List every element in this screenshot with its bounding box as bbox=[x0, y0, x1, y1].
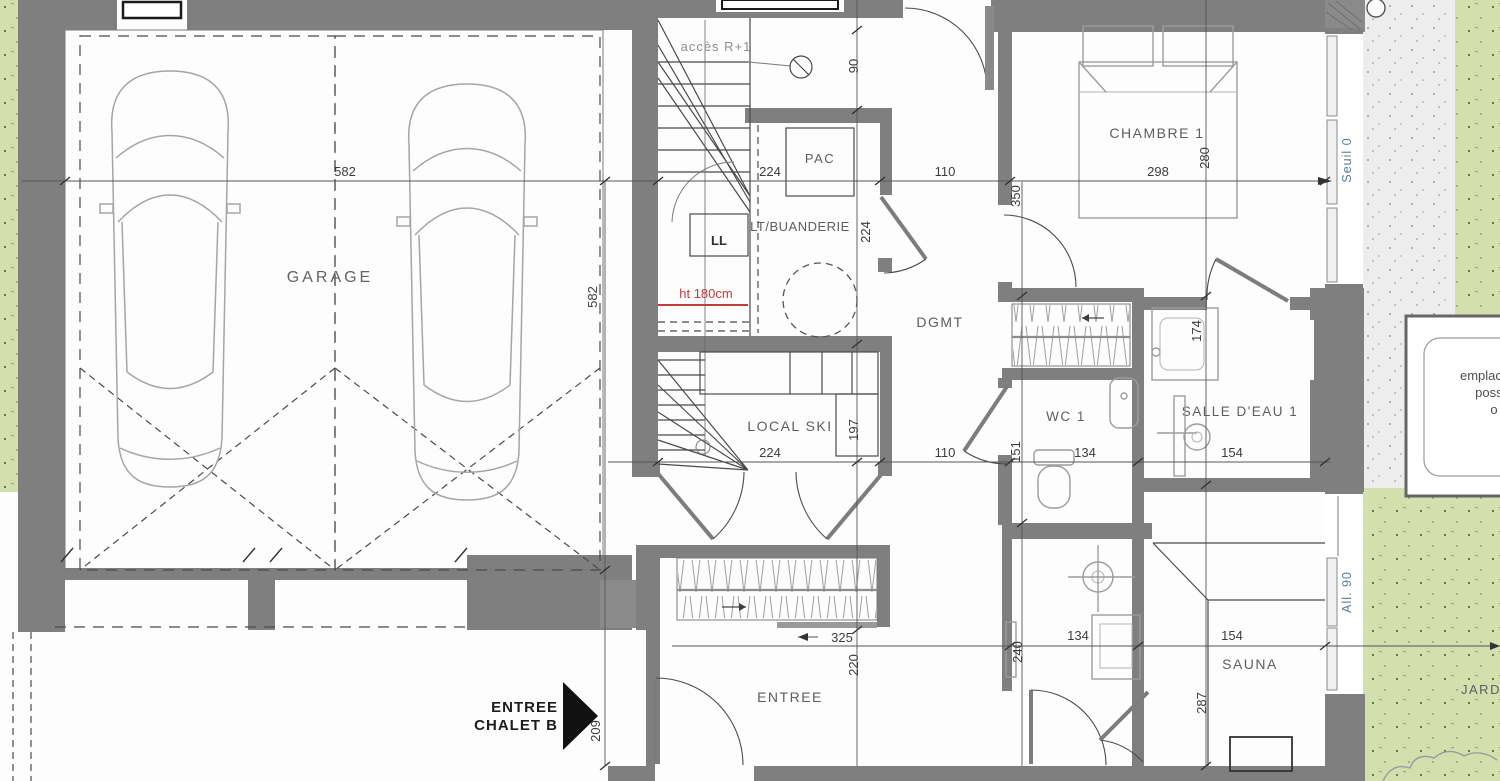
access-upper-floor-label: accès R+1 bbox=[681, 39, 752, 54]
sauna-benches bbox=[1153, 543, 1325, 766]
buanderie-label: LT/BUANDERIE bbox=[750, 219, 850, 234]
parking-cross-2 bbox=[335, 368, 600, 570]
car-1 bbox=[100, 71, 240, 487]
floor-plan-page: GARAGE ht 180cm accès R+1 PAC LL LT/BUAN… bbox=[0, 0, 1500, 781]
dim-shower-width: 134 bbox=[1067, 628, 1089, 643]
dim-chambre-depth: 280 bbox=[1197, 147, 1212, 169]
dim-garage-depth: 582 bbox=[585, 286, 600, 308]
closet-threshold bbox=[777, 622, 877, 628]
dim-localski-depth: 197 bbox=[846, 419, 861, 441]
chambre1-label: CHAMBRE 1 bbox=[1109, 125, 1204, 141]
salle-deau1-door bbox=[1207, 259, 1288, 301]
dgmt-label: DGMT bbox=[916, 314, 963, 330]
dimension-labels: 582 224 110 298 90 350 280 224 582 174 1… bbox=[334, 59, 1243, 742]
wc1-door bbox=[964, 385, 1008, 464]
sauna-heater bbox=[1230, 737, 1292, 771]
entrance-arrow-group: ENTREE CHALET B bbox=[474, 682, 598, 750]
localski-double-doors bbox=[655, 470, 885, 539]
dgmt-zone: DGMT bbox=[916, 304, 1130, 366]
allege-label: All. 90 bbox=[1340, 571, 1354, 613]
dim-stair-width: 224 bbox=[759, 164, 781, 179]
jardin-label: JARDIN bbox=[1461, 682, 1500, 697]
dim-localski-width: 224 bbox=[759, 445, 781, 460]
note-line3: o bbox=[1490, 402, 1497, 417]
toilet-tank bbox=[1034, 450, 1074, 465]
dim-hall-top: 110 bbox=[935, 164, 956, 179]
washer-label: LL bbox=[711, 233, 727, 248]
local-ski-label: LOCAL SKI bbox=[747, 418, 832, 434]
dim-sauna-width: 154 bbox=[1221, 628, 1243, 643]
dim-entree-depth: 220 bbox=[846, 654, 861, 676]
garage-window bbox=[117, 0, 187, 24]
seuil-label: Seuil 0 bbox=[1340, 137, 1354, 182]
parking-space-1 bbox=[80, 36, 335, 570]
vanity-unit bbox=[1152, 308, 1218, 380]
sauna-room: SAUNA bbox=[1153, 543, 1325, 771]
dim-wc-width: 134 bbox=[1074, 445, 1096, 460]
toilet-bowl bbox=[1038, 466, 1070, 508]
car-2 bbox=[397, 84, 537, 500]
sauna-label: SAUNA bbox=[1222, 656, 1278, 672]
entrance-label-line1: ENTREE bbox=[491, 699, 558, 716]
pac-label: PAC bbox=[805, 151, 835, 166]
shower-room bbox=[1006, 545, 1140, 679]
entrance-label-line2: CHALET B bbox=[474, 717, 558, 734]
ski-shelf bbox=[700, 352, 878, 394]
chambre1-room: CHAMBRE 1 bbox=[1079, 26, 1237, 218]
dim-garage-width: 582 bbox=[334, 164, 356, 179]
lawn-strip-left bbox=[0, 0, 18, 492]
chambre1-door bbox=[1004, 215, 1076, 287]
garden-bottom-right bbox=[1363, 488, 1500, 781]
note-box: emplacement possible o bbox=[1406, 316, 1500, 496]
dim-sauna-depth: 287 bbox=[1194, 692, 1209, 714]
staircase: ht 180cm accès R+1 bbox=[658, 18, 812, 470]
dim-stair-top: 90 bbox=[846, 59, 861, 73]
shower-room-door bbox=[1031, 690, 1148, 765]
headroom-label: ht 180cm bbox=[679, 286, 732, 301]
wc1-label: WC 1 bbox=[1046, 409, 1086, 424]
dim-hall-mid: 110 bbox=[935, 445, 956, 460]
wc1-room: WC 1 bbox=[1034, 378, 1138, 508]
salle-deau1-label: SALLE D'EAU 1 bbox=[1182, 404, 1299, 419]
dim-sde-width: 154 bbox=[1221, 445, 1243, 460]
dim-wc-depth: 151 bbox=[1008, 441, 1023, 463]
entree-label: ENTREE bbox=[757, 689, 823, 705]
dim-chambre-left: 350 bbox=[1008, 185, 1023, 207]
note-line2: possible bbox=[1475, 385, 1500, 400]
hall-top-door bbox=[905, 6, 994, 90]
garage-label: GARAGE bbox=[287, 269, 373, 286]
exterior-post-symbol bbox=[1367, 0, 1385, 17]
floor-plan-drawing: GARAGE ht 180cm accès R+1 PAC LL LT/BUAN… bbox=[0, 0, 1500, 781]
parking-space-2 bbox=[335, 36, 600, 570]
dim-buanderie-depth: 224 bbox=[858, 221, 873, 243]
dim-entree-width: 325 bbox=[831, 630, 853, 645]
parking-cross-1 bbox=[80, 368, 335, 570]
dim-chambre-width: 298 bbox=[1147, 164, 1169, 179]
dim-shower-depth: 240 bbox=[1010, 641, 1025, 663]
garage-room: GARAGE bbox=[55, 30, 603, 627]
note-line1: emplacement bbox=[1460, 368, 1500, 383]
water-tank-symbol bbox=[783, 263, 857, 337]
dim-sde-top: 174 bbox=[1189, 320, 1204, 342]
dim-325-arrow bbox=[798, 633, 808, 641]
entree-main-door bbox=[656, 678, 743, 765]
stair-window bbox=[716, 0, 844, 12]
